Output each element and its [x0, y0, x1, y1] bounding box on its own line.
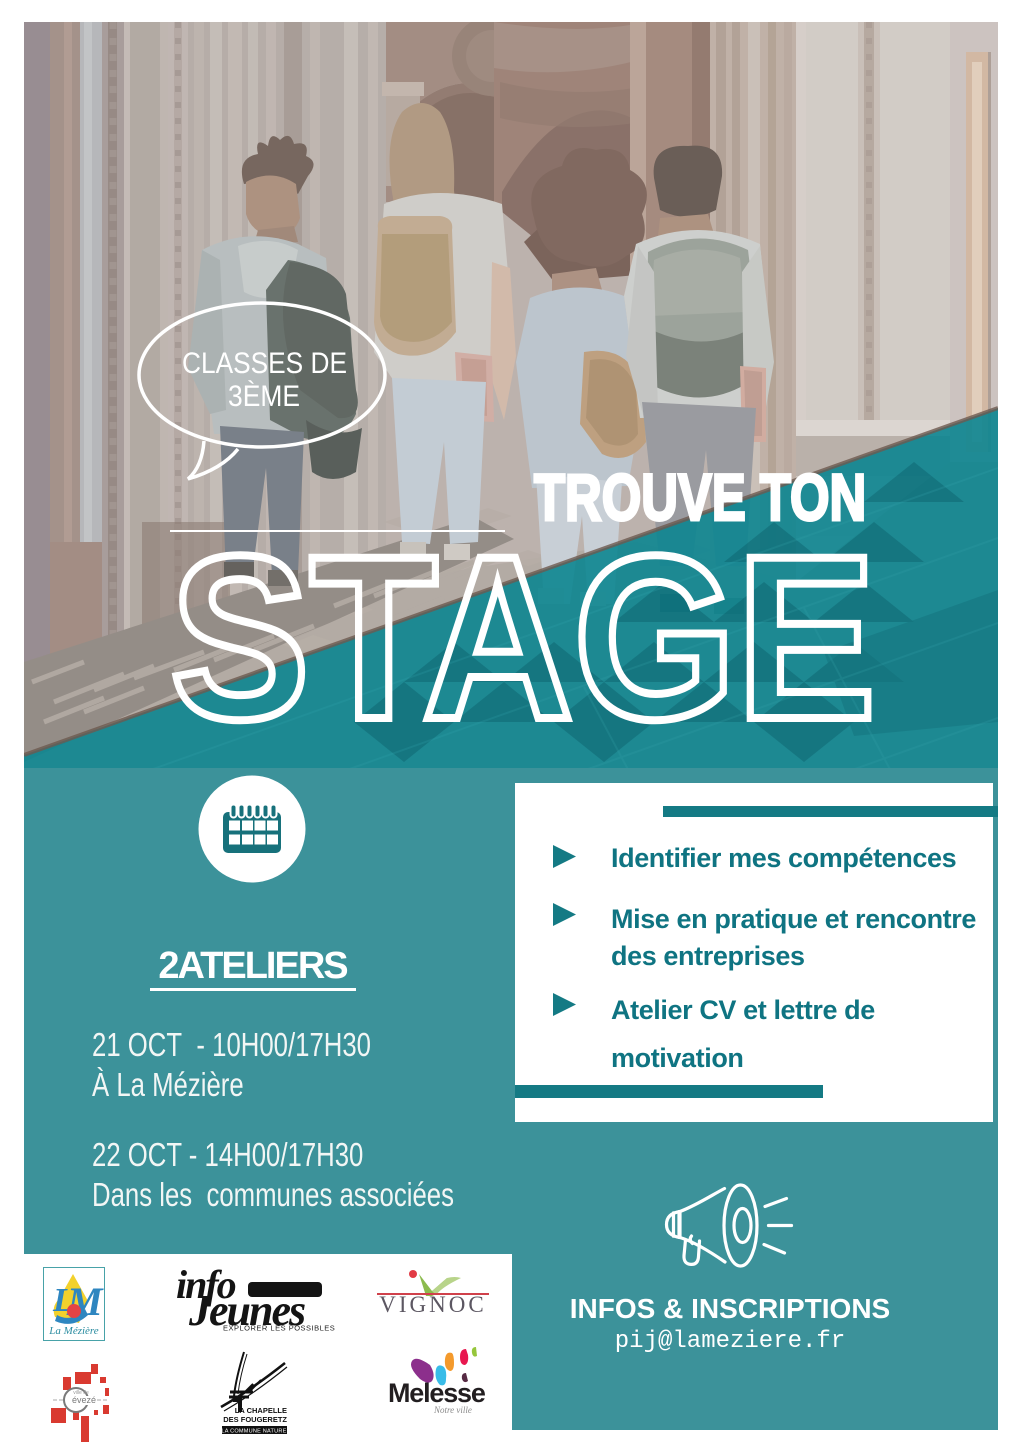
svg-text:EXPLORER LES POSSIBLES: EXPLORER LES POSSIBLES [223, 1324, 335, 1333]
svg-text:CLASSES DE: CLASSES DE [182, 347, 347, 380]
svg-text:DES FOUGERETZ: DES FOUGERETZ [223, 1415, 287, 1424]
svg-text:La Mézière: La Mézière [48, 1325, 99, 1337]
svg-text:évezé: évezé [72, 1395, 96, 1405]
svg-text:3ÈME: 3ÈME [228, 380, 300, 413]
svg-text:LA CHAPELLE: LA CHAPELLE [235, 1406, 287, 1415]
svg-text:VIGNOC: VIGNOC [379, 1292, 486, 1314]
svg-text:LA COMMUNE NATURE: LA COMMUNE NATURE [221, 1428, 286, 1434]
svg-text:STAGE: STAGE [170, 508, 876, 768]
svg-text:Melesse: Melesse [388, 1378, 486, 1408]
svg-text:Notre ville: Notre ville [433, 1405, 472, 1415]
